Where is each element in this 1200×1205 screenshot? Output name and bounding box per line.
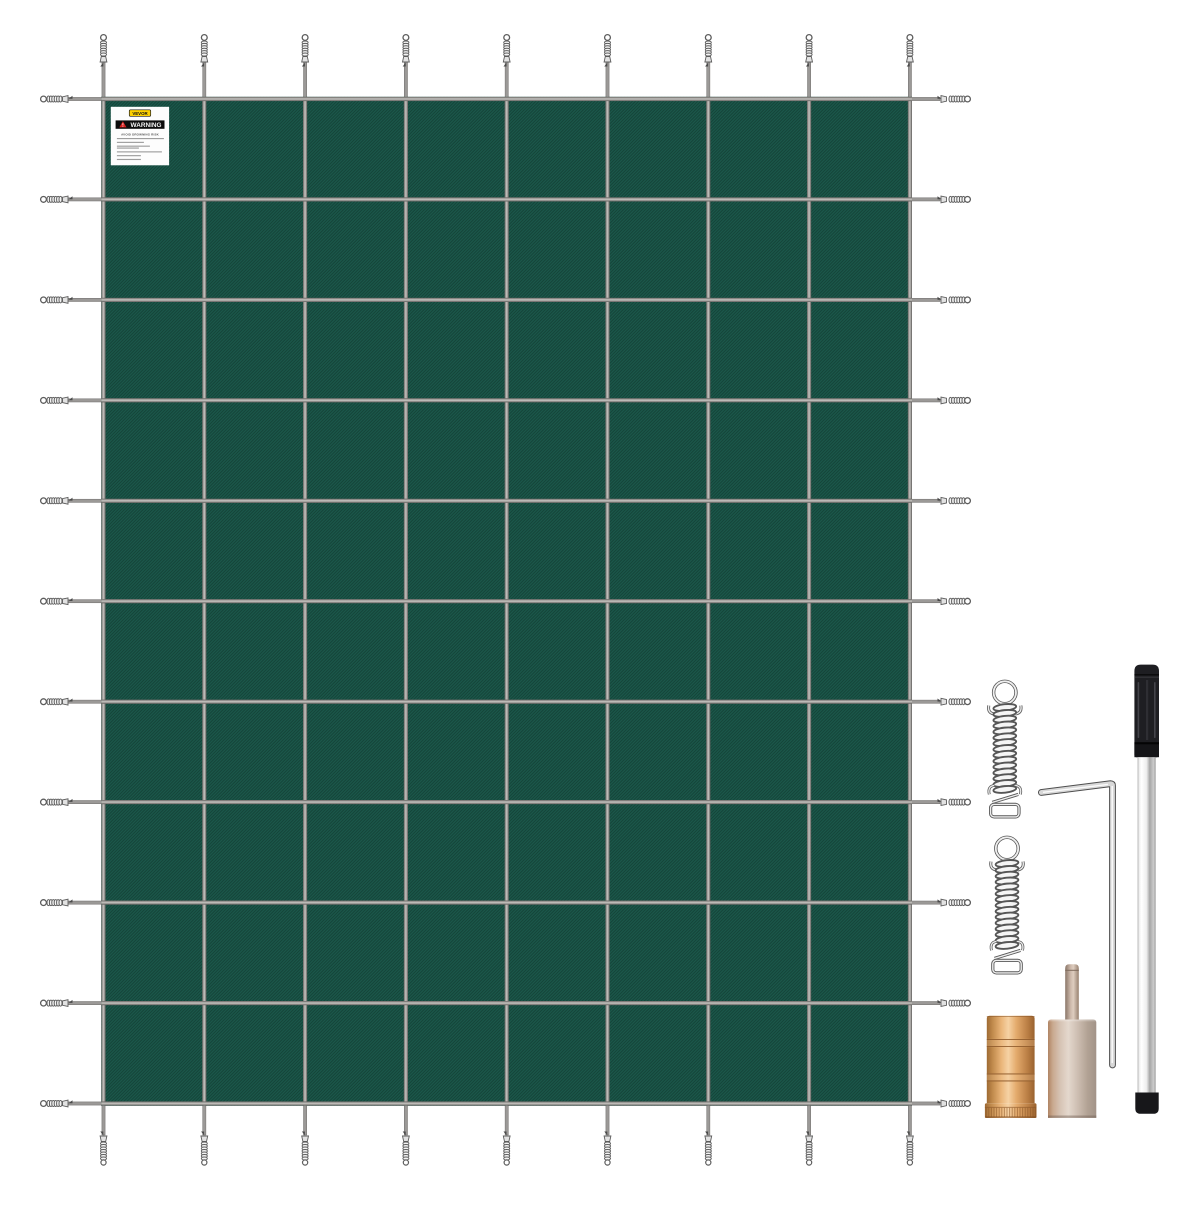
svg-text:AVOID DROWNING RISK: AVOID DROWNING RISK [121,133,159,137]
svg-text:VEVOR: VEVOR [132,111,148,116]
svg-text:WARNING: WARNING [131,122,162,129]
